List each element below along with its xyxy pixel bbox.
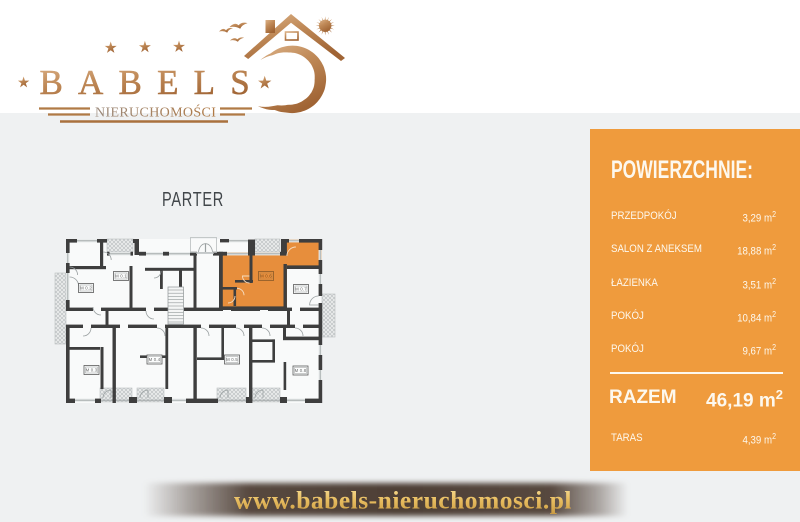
svg-text:www.babels-nieruchomosci.pl: www.babels-nieruchomosci.pl: [234, 486, 572, 515]
svg-text:M 0.4: M 0.4: [149, 357, 161, 362]
svg-text:M 0.6: M 0.6: [260, 274, 272, 279]
svg-text:M 0.5: M 0.5: [226, 357, 238, 362]
svg-text:M 0.7: M 0.7: [295, 287, 307, 292]
svg-text:M 0.1: M 0.1: [115, 274, 127, 279]
svg-text:BABELS: BABELS: [40, 63, 265, 102]
svg-text:NIERUCHOMOŚCI: NIERUCHOMOŚCI: [95, 104, 216, 121]
svg-text:M 0.3: M 0.3: [86, 368, 98, 373]
svg-text:M 0.8: M 0.8: [295, 368, 307, 373]
svg-text:M 0.2: M 0.2: [80, 286, 92, 291]
